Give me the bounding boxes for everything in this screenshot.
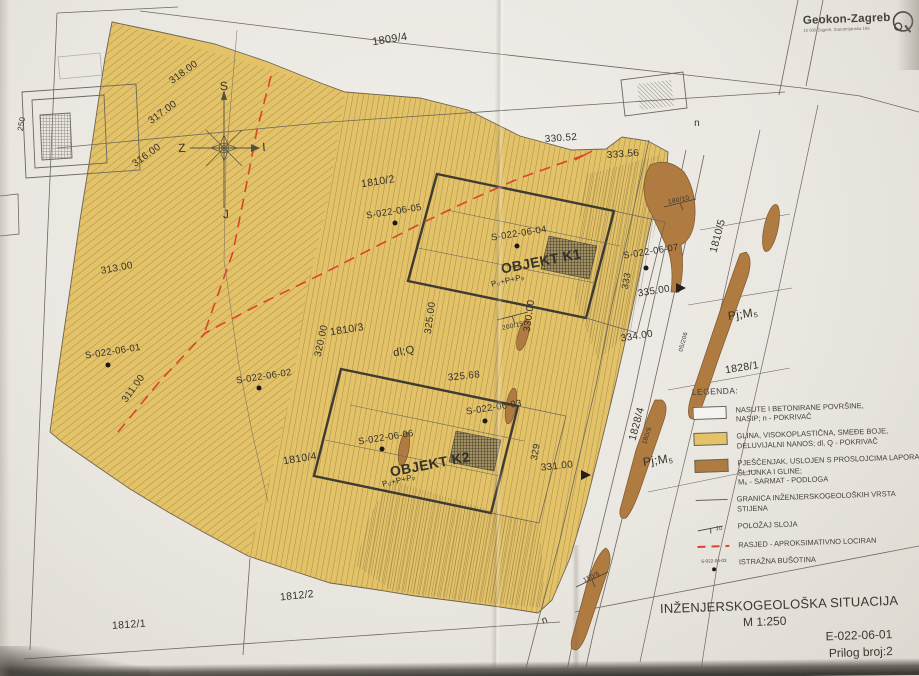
cover-label-n-top: n [694,119,700,129]
elevation-317: 317.00 [147,99,179,126]
elevation-329: 329 [530,443,542,461]
legend: LEGENDA: NASUTE I BETONIRANE POVRŠINE,NA… [692,379,919,578]
legend-item-glina: GLINA, VISOKOPLASTIČNA, SMEĐE BOJE,DELUV… [693,425,919,452]
borehole-dot-s-022-06-01 [106,363,111,368]
elevation-318: 318.00 [168,59,200,86]
elevation-330: 330.00 [523,299,537,332]
parcel-1810-4: 1810/4 [282,451,317,467]
borehole-label-s-022-06-06: S-022-06-06 [358,429,415,447]
borehole-dot-s-022-06-06 [380,447,385,452]
legend-swatch-nasip [692,405,726,419]
elevation-330-52: 330.52 [544,133,577,145]
borehole-dot-s-022-06-05 [393,221,398,226]
compass-letter-south: J [222,208,229,220]
elevation-311: 311.00 [121,373,148,404]
elevation-333: 333 [621,272,633,290]
paper-fold-crease-bottom [572,545,580,676]
legend-swatch-pjescenjak [694,459,728,473]
cover-label-dlq: dl;Q [393,345,416,360]
elevation-316: 316.00 [131,142,163,169]
scanned-map-sheet: 1809/4318.00317.00316.00330.52333.56313.… [0,0,919,676]
borehole-label-s-022-06-07: S-022-06-07 [623,243,680,261]
unit-label-pjm5-upper: Pj;M₅ [727,306,759,322]
parcel-1828-1: 1828/1 [724,360,759,376]
legend-item-pjescenjak: PJEŠČENJAK, USLOJEN S PROSLOJCIMA LAPORA… [694,452,919,488]
elevation-313: 313.00 [100,261,134,277]
legend-swatch-busotina: S-022-06-03 [698,558,730,570]
borehole-dot-s-022-06-03 [483,419,488,424]
borehole-dot-icon [712,567,716,571]
compass-letter-east: I [262,141,266,153]
label-250: 250 [17,116,27,131]
photo-edge-top-right [897,0,919,70]
borehole-dot-s-022-06-04 [515,244,520,249]
legend-item-granica: GRANICA INŽENJERSKOGEOLOŠKIH VRSTA STIJE… [696,488,919,515]
photo-edge-left [0,0,10,676]
dip-150-5: 150/5 [583,571,602,584]
elevation-335: 335.00 [637,285,671,300]
compass-letter-west: Z [178,142,186,155]
legend-swatch-granica [696,499,728,501]
dip-180-10: 180/10 [668,196,691,207]
legend-item-polozaj-sloja: 10 POLOŽAJ SLOJA [696,515,919,534]
borehole-dot-s-022-06-02 [257,386,262,391]
legend-swatch-dip: 10 [696,522,728,534]
legend-item-rasjed: RASJED - APROKSIMATIVNO LOCIRAN [697,534,919,551]
parcel-1810-3: 1810/3 [329,322,364,338]
borehole-label-s-022-06-01: S-022-06-01 [85,343,142,361]
parcel-1812-2: 1812/2 [280,589,315,603]
elevation-320: 320.00 [314,324,331,358]
borehole-label-s-022-06-05: S-022-06-05 [366,203,423,221]
elevation-325: 325.00 [424,301,438,334]
legend-item-nasip: NASUTE I BETONIRANE POVRŠINE,NASIP; n - … [692,399,919,426]
objekt-k2-storeys: P₀+P+Pₚ [381,473,416,488]
title-block: INŽENJERSKOGEOLOŠKA SITUACIJA M 1:250 E-… [651,593,909,667]
borehole-label-s-022-06-02: S-022-06-02 [236,368,293,386]
elevation-325-68: 325.68 [447,370,480,383]
dip-180-5: 180/5 [642,427,654,446]
legend-swatch-glina [693,432,727,446]
objekt-k1-label: OBJEKT K1 [500,246,582,275]
legend-swatch-rasjed [697,545,729,548]
elevation-334: 334.00 [620,330,654,345]
borehole-dot-s-022-06-07 [644,266,649,271]
photo-edge-bottom-left [0,646,150,676]
elevation-331: 331.00 [540,460,573,473]
parcel-1810-5: 1810/5 [709,218,728,253]
dip-symbol-icon [696,522,728,535]
road-parcel-number: 05/206 [678,331,689,352]
sheet-scale: M 1:250 [690,612,840,631]
cover-label-n-bottom: n [541,615,550,626]
parcel-1809-4: 1809/4 [372,32,409,48]
parcel-1812-1: 1812/1 [112,619,147,632]
parcel-1810-2: 1810/2 [360,174,395,190]
unit-label-pjm5-lower: Pj;M₅ [642,452,674,468]
legend-item-busotina: S-022-06-03 ISTRAŽNA BUŠOTINA [698,551,919,570]
elevation-333-56: 333.56 [606,149,639,161]
compass-letter-north: S [219,80,228,93]
